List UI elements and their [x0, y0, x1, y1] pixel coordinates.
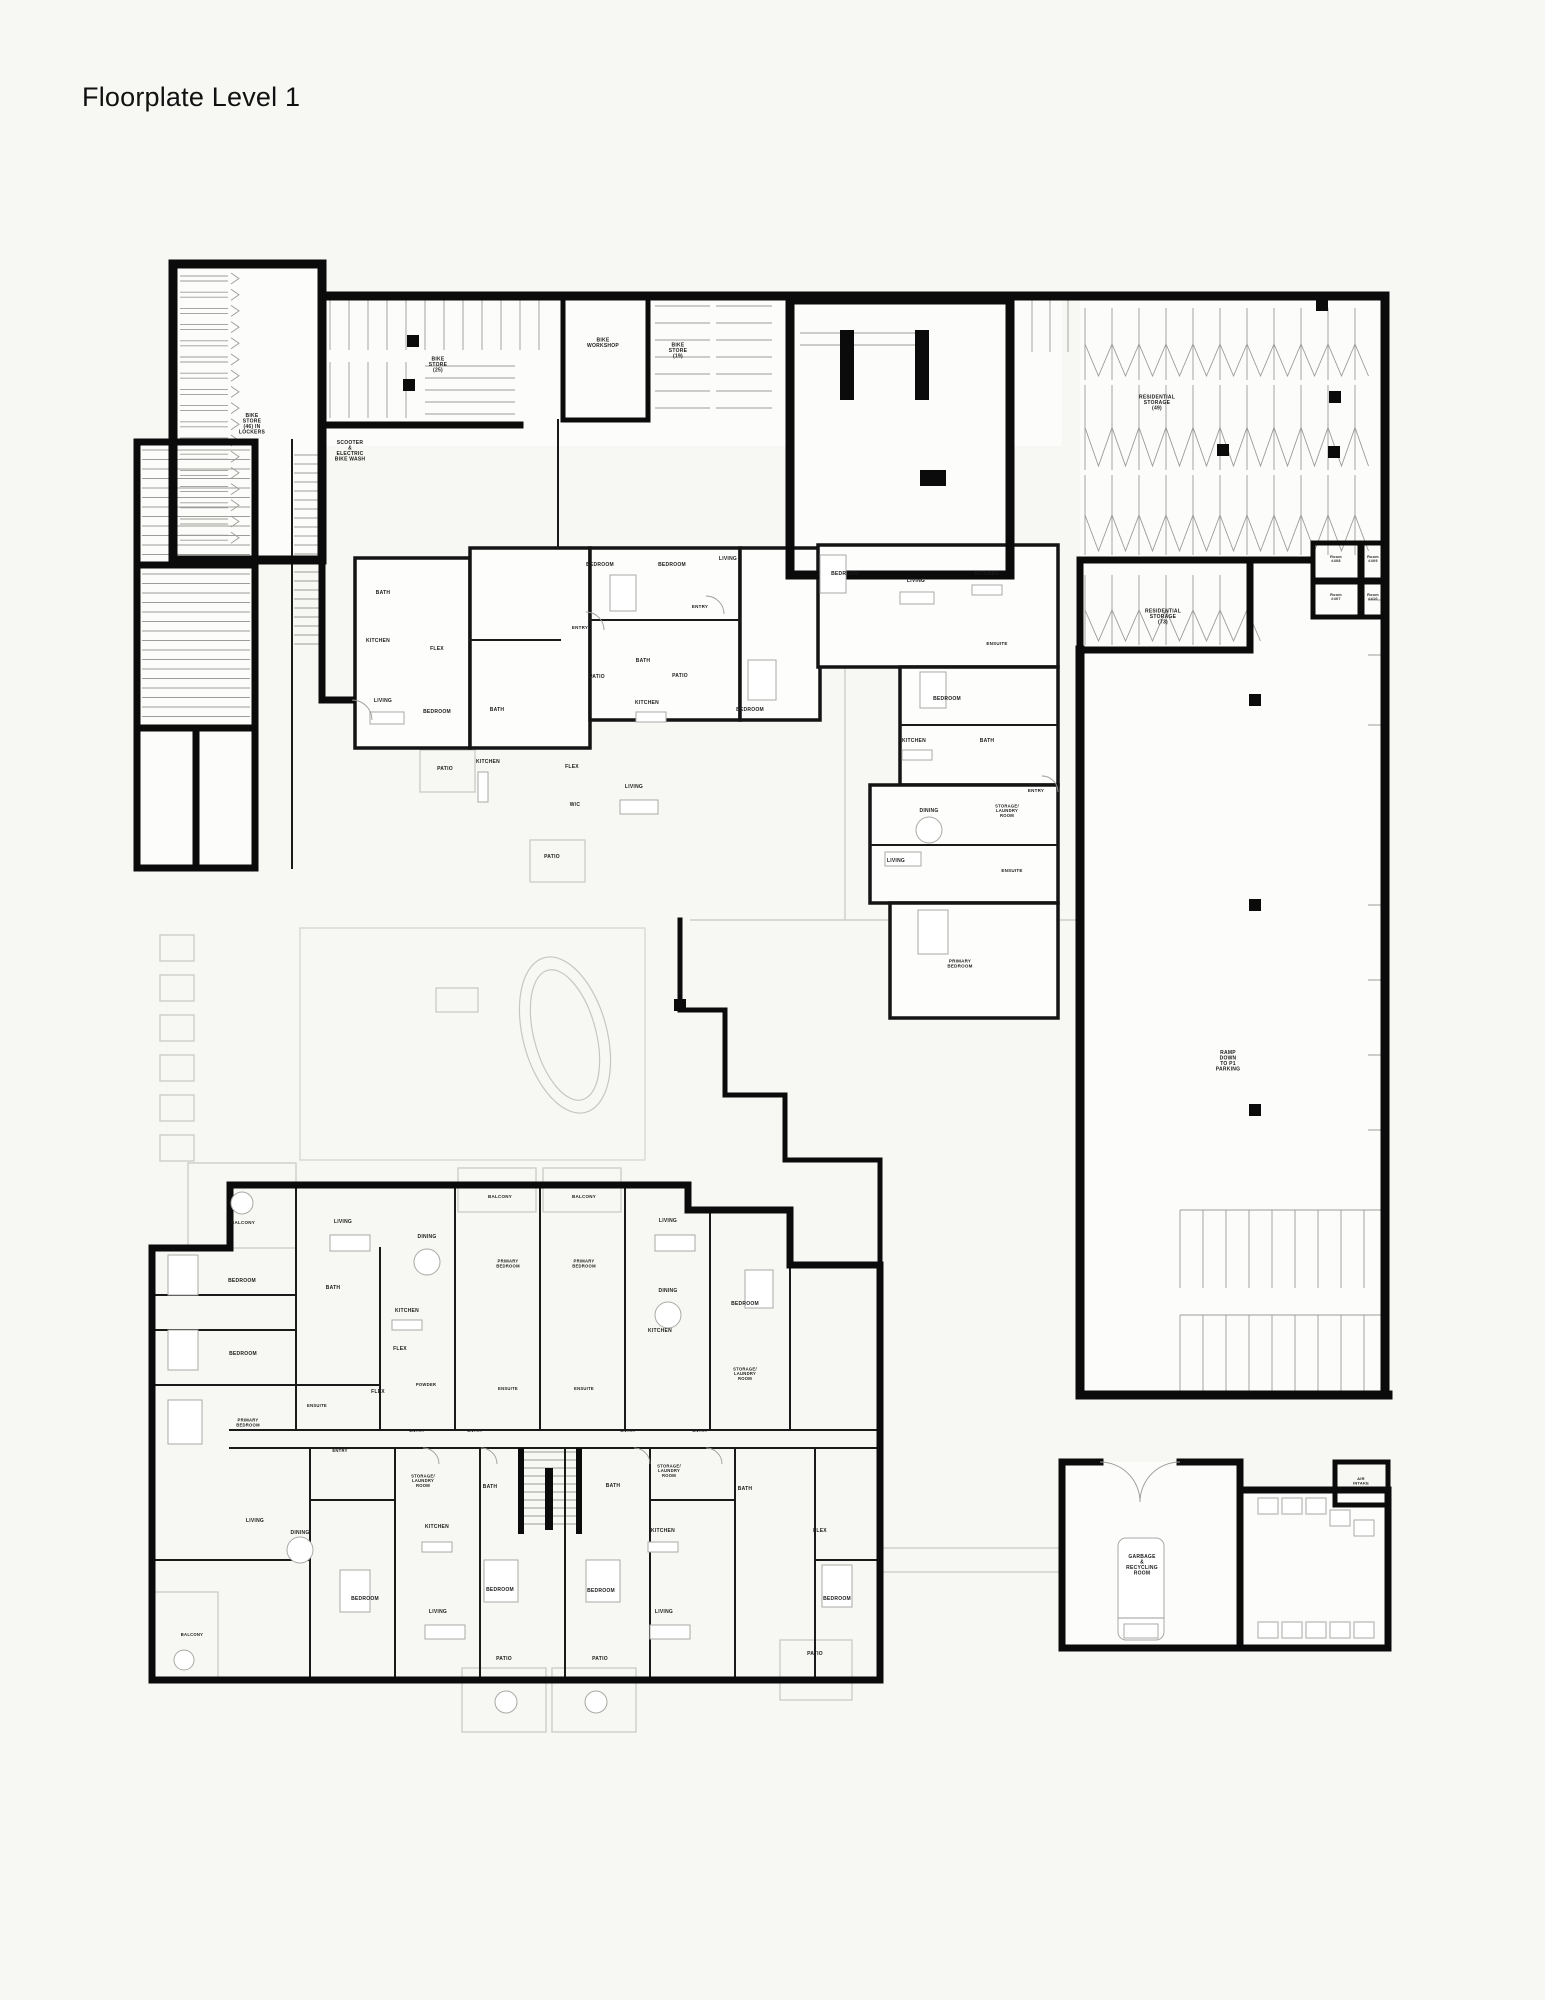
- room-label: BEDROOM: [587, 1588, 615, 1594]
- room-label: BATH: [326, 1285, 341, 1291]
- room-label: PATIO: [437, 766, 453, 772]
- room-label: DINING: [659, 1288, 678, 1294]
- room-label: BEDROOM: [229, 1351, 257, 1357]
- unit-walls-layer: [152, 420, 1058, 1680]
- room-label: ENSUITE: [986, 641, 1007, 646]
- room-label: KITCHEN: [902, 738, 926, 744]
- room-409-label: Room#409: [1367, 555, 1379, 563]
- room-label: PRIMARYBEDROOM: [572, 1259, 596, 1269]
- room-label: W/C: [570, 802, 581, 808]
- room-label: PATIO: [807, 1651, 823, 1657]
- room-label: LIVING: [374, 698, 392, 704]
- room-label: BEDROOM: [731, 1301, 759, 1307]
- room-label: LIVING: [659, 1218, 677, 1224]
- room-label: ENTRY: [692, 1428, 707, 1433]
- room-label: STORAGE/LAUNDRYROOM: [733, 1366, 757, 1380]
- room-407-label: Room#407: [1330, 593, 1342, 601]
- room-label: FLEX: [430, 646, 444, 652]
- room-label: ENTRY: [409, 1428, 424, 1433]
- room-label: BALCONY: [231, 1220, 255, 1225]
- room-label: LIVING: [625, 784, 643, 790]
- room-label: BEDROOM: [831, 571, 859, 577]
- room-label: LIVING: [719, 556, 737, 562]
- room-label: POWDER: [416, 1382, 436, 1387]
- room-label: PATIO: [589, 674, 605, 680]
- room-label: FLEX: [565, 764, 579, 770]
- room-label: BEDROOM: [736, 707, 764, 713]
- room-label: BATH: [483, 1484, 498, 1490]
- room-label: BATH: [980, 738, 995, 744]
- room-label: LIVING: [655, 1609, 673, 1615]
- room-label: ENTRY: [572, 625, 588, 630]
- room-label: BATH: [636, 658, 651, 664]
- room-label: BEDROOM: [228, 1278, 256, 1284]
- room-label: BEDROOM: [486, 1587, 514, 1593]
- room-label: ENTRY: [467, 1428, 482, 1433]
- room-label: STORAGE/LAUNDRYROOM: [411, 1473, 435, 1487]
- room-label: BEDROOM: [351, 1596, 379, 1602]
- room-label: KITCHEN: [366, 638, 390, 644]
- room-label: BEDROOM: [933, 696, 961, 702]
- room-label: KITCHEN: [635, 700, 659, 706]
- room-label: BALCONY: [181, 1632, 203, 1637]
- room-label: ENSUITE: [1001, 868, 1022, 873]
- room-label: BATH: [738, 1486, 753, 1492]
- room-label: KITCHEN: [648, 1328, 672, 1334]
- room-label: BEDROOM: [423, 709, 451, 715]
- room-label: ENSUITE: [574, 1386, 594, 1391]
- room-label: BALCONY: [488, 1194, 512, 1199]
- room-label: ENSUITE: [498, 1386, 518, 1391]
- room-label: BATH: [490, 707, 505, 713]
- room-label: BEDROOM: [586, 562, 614, 568]
- room-label: BATH: [376, 590, 391, 596]
- room-label: KITCHEN: [395, 1308, 419, 1314]
- room-label: FLEX: [393, 1346, 407, 1352]
- room-label: BEDROOM: [823, 1596, 851, 1602]
- room-label: ENTRY: [692, 604, 708, 609]
- room-label: FLEX: [371, 1389, 385, 1395]
- room-label: STORAGE/LAUNDRYROOM: [657, 1463, 681, 1477]
- room-label: PRIMARYBEDROOM: [496, 1259, 520, 1269]
- room-408-label: Room#408: [1330, 555, 1342, 563]
- room-label: ENTRY: [620, 1428, 635, 1433]
- room-label: DINING: [418, 1234, 437, 1240]
- room-label: LIVING: [429, 1609, 447, 1615]
- room-label: LIVING: [887, 858, 905, 864]
- room-label: FLEX: [813, 1528, 827, 1534]
- room-label: LIVING: [907, 578, 925, 584]
- room-label: PATIO: [544, 854, 560, 860]
- air-intake-label: AIRINTAKE: [1353, 1476, 1369, 1485]
- room-label: BATH: [606, 1483, 621, 1489]
- floorplan-drawing: BIKESTORE(46) INLOCKERSSCOOTER&ELECTRICB…: [0, 0, 1545, 2000]
- room-label: PRIMARYBEDROOM: [947, 959, 972, 969]
- room-label: KITCHEN: [651, 1528, 675, 1534]
- room-label: PATIO: [496, 1656, 512, 1662]
- room-label: BALCONY: [572, 1194, 596, 1199]
- scooter-ebike-wash-label: SCOOTER&ELECTRICBIKE WASH: [335, 440, 366, 463]
- room-label: KITCHEN: [476, 759, 500, 765]
- room-label: DINING: [291, 1530, 310, 1536]
- room-label: LIVING: [246, 1518, 264, 1524]
- room-label: DINING: [920, 808, 939, 814]
- room-410-label: Room#410: [1367, 593, 1379, 601]
- room-label: BEDROOM: [658, 562, 686, 568]
- room-label: KITCHEN: [975, 571, 999, 577]
- room-label: PATIO: [592, 1656, 608, 1662]
- room-label: LIVING: [334, 1219, 352, 1225]
- room-label: ENTRY: [1028, 788, 1044, 793]
- room-label: PRIMARYBEDROOM: [236, 1418, 260, 1428]
- room-label: KITCHEN: [425, 1524, 449, 1530]
- room-label: ENSUITE: [307, 1403, 327, 1408]
- room-label: ENTRY: [332, 1448, 347, 1453]
- room-label: PATIO: [672, 673, 688, 679]
